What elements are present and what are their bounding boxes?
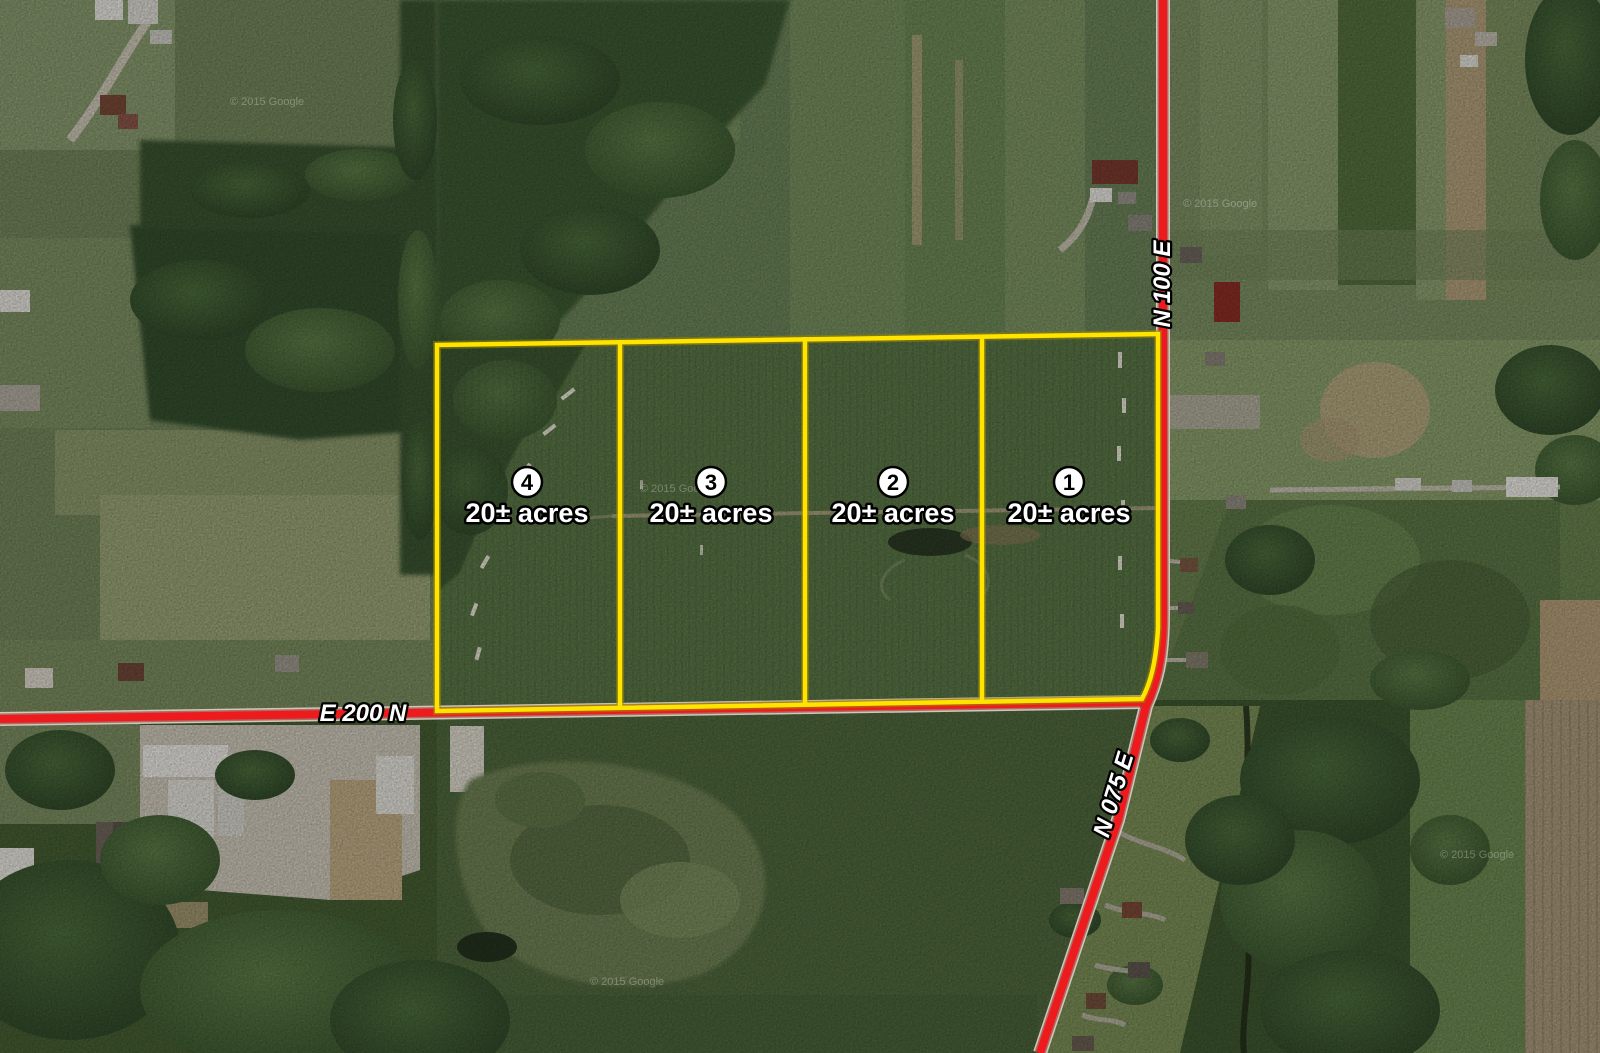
google-watermark: © 2015 Google [1440,849,1514,861]
parcel-4-acreage: 20± acres [466,498,589,528]
road-label-n100e: N 100 E [1149,240,1176,328]
aerial-parcel-map: © 2015 Google © 2015 Google © 2015 Googl… [0,0,1600,1053]
grain-texture [0,0,1600,1053]
parcel-4-number: 4 [521,470,534,495]
parcel-3-number: 3 [705,470,717,495]
parcel-3-acreage: 20± acres [650,498,773,528]
parcel-2-acreage: 20± acres [832,498,955,528]
parcel-1-acreage: 20± acres [1008,498,1131,528]
map-canvas: © 2015 Google © 2015 Google © 2015 Googl… [0,0,1600,1053]
parcel-1-number: 1 [1063,470,1075,495]
parcel-2-number: 2 [887,470,899,495]
background-imagery [0,0,1600,1053]
google-watermark: © 2015 Google [230,96,304,108]
google-watermark: © 2015 Google [1183,198,1257,210]
google-watermark: © 2015 Google [590,976,664,988]
road-label-e200n: E 200 N [320,700,407,727]
